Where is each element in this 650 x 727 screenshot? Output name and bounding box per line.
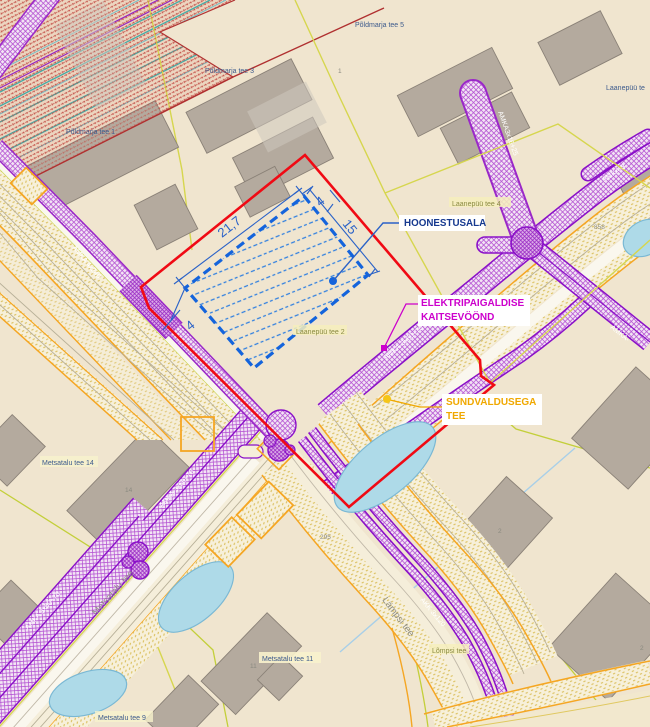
- svg-text:Põldmarja tee 3: Põldmarja tee 3: [205, 68, 254, 75]
- svg-text:TEE: TEE: [446, 411, 466, 422]
- svg-text:11: 11: [250, 663, 257, 670]
- svg-text:14: 14: [125, 487, 133, 494]
- svg-text:KAITSEVÖÖND: KAITSEVÖÖND: [421, 310, 494, 323]
- svg-text:Laanepüü tee 2: Laanepüü tee 2: [296, 329, 345, 336]
- svg-text:Põldmarja tee 1: Põldmarja tee 1: [66, 129, 115, 136]
- svg-text:858: 858: [594, 224, 605, 231]
- svg-text:2: 2: [640, 645, 644, 652]
- svg-text:1: 1: [338, 68, 342, 75]
- svg-text:Lõmpsi tee: Lõmpsi tee: [432, 648, 466, 655]
- svg-text:Põldmarja tee 5: Põldmarja tee 5: [355, 22, 404, 29]
- svg-text:Laanepüü te: Laanepüü te: [606, 85, 645, 92]
- svg-text:ELEKTRIPAIGALDISE: ELEKTRIPAIGALDISE: [421, 298, 524, 309]
- svg-text:295: 295: [320, 534, 331, 541]
- svg-text:Metsatalu tee 11: Metsatalu tee 11: [262, 656, 313, 663]
- svg-text:Metsatalu tee 14: Metsatalu tee 14: [42, 460, 94, 467]
- svg-text:Laanepüü tee 4: Laanepüü tee 4: [452, 201, 501, 208]
- svg-text:SUNDVALDUSEGA: SUNDVALDUSEGA: [446, 397, 536, 408]
- svg-text:2: 2: [498, 528, 502, 535]
- svg-text:Metsatalu tee 9: Metsatalu tee 9: [98, 715, 146, 722]
- svg-text:HOONESTUSALA: HOONESTUSALA: [404, 218, 486, 229]
